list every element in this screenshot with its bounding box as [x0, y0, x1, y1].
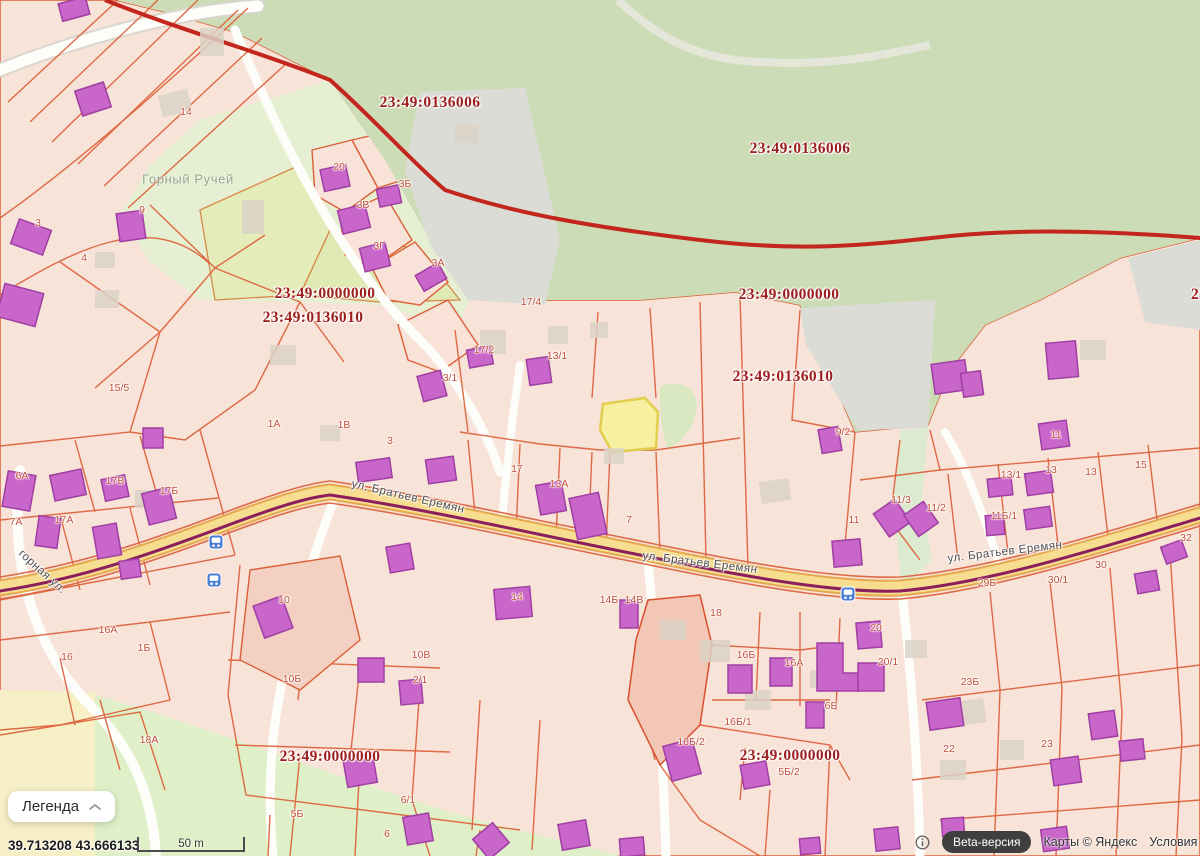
map-copyright[interactable]: Карты © Яндекс — [1043, 835, 1137, 849]
parcel-number-label: 16 — [61, 651, 73, 663]
parcel-number-label: 23Б — [961, 676, 980, 688]
parcel-number-label: 14 — [180, 106, 192, 118]
cadastral-quarter-label: 23:49:0136006 — [380, 94, 481, 112]
parcel-number-label: 6 — [384, 828, 390, 840]
parcel-number-label: 3/1 — [443, 372, 458, 384]
parcel-number-label: 17/4 — [521, 296, 541, 308]
parcel-number-label: 13/1 — [1001, 469, 1021, 481]
parcel-number-label: 11/2 — [926, 502, 946, 514]
parcel-number-label: 3Б — [399, 178, 412, 190]
parcel-number-label: 17А — [55, 514, 74, 526]
beta-version-badge[interactable]: Beta-версия — [942, 831, 1031, 853]
scale-bar-label: 50 m — [178, 839, 204, 850]
parcel-number-label: 1А — [268, 418, 281, 430]
parcel-number-label: 7 — [626, 514, 632, 526]
bus-stop-icon[interactable] — [841, 587, 856, 602]
parcel-number-label: 22 — [943, 743, 955, 755]
parcel-number-label: 20 — [870, 622, 882, 634]
parcel-number-label: 3А — [432, 257, 445, 269]
bus-stop-icon[interactable] — [209, 535, 224, 550]
parcel-number-label: 13 — [1085, 466, 1097, 478]
parcel-number-label: 13 — [1045, 464, 1057, 476]
cadastral-quarter-label: 23:49:0136010 — [263, 309, 364, 327]
parcel-number-label: 14 — [511, 591, 523, 603]
map-viewport[interactable]: 23:49:013600623:49:013600623:49:00000002… — [0, 0, 1200, 856]
parcel-number-label: 9 — [139, 204, 145, 216]
cadastral-quarter-label: 23:49:0000000 — [739, 286, 840, 304]
cadastral-quarter-label: 23:49:0136006 — [750, 140, 851, 158]
parcel-number-label: 14В — [625, 594, 644, 606]
cadastral-quarter-label: 23:49:0136010 — [733, 368, 834, 386]
parcel-number-label: 14Б — [600, 594, 619, 606]
parcel-number-label: 10Б — [283, 673, 302, 685]
parcel-number-label: 10 — [278, 594, 290, 606]
selected-parcel[interactable] — [600, 398, 658, 452]
parcel-number-label: 1Б — [138, 642, 151, 654]
cadastral-quarter-label: 23:49:0000000 — [275, 285, 376, 303]
parcel-number-label: 30/1 — [1048, 574, 1068, 586]
place-name-label: Горный Ручей — [142, 172, 234, 187]
parcel-number-label: 16А — [99, 624, 118, 636]
parcel-number-label: 23 — [1041, 738, 1053, 750]
parcel-number-label: 9/2 — [836, 426, 851, 438]
parcel-number-label: 3В — [357, 199, 370, 211]
cursor-coordinates: 39.713208 43.666133 — [8, 838, 139, 853]
parcel-number-label: 6/1 — [401, 794, 416, 806]
parcel-number-label: 20/1 — [878, 656, 898, 668]
parcel-number-label: 13/1 — [547, 350, 567, 362]
parcel-number-label: 17Б — [160, 485, 179, 497]
parcel-number-label: 16Б — [737, 649, 756, 661]
parcel-number-label: 5Б/2 — [778, 766, 800, 778]
parcel-number-label: 18А — [140, 734, 159, 746]
parcel-number-label: 17В — [106, 475, 125, 487]
parcel-number-label: 6Б — [825, 700, 838, 712]
cadastral-quarter-label: 23:49:0000000 — [740, 747, 841, 765]
parcel-number-label: 1В — [338, 419, 351, 431]
parcel-number-label: 32 — [1180, 532, 1192, 544]
parcel-number-label: 20 — [333, 161, 345, 173]
legend-button[interactable]: Легенда — [8, 791, 115, 822]
parcel-number-label: 16Б/2 — [677, 736, 704, 748]
parcel-number-label: 18 — [710, 607, 722, 619]
cadastral-quarter-label: 23:4 — [1191, 286, 1200, 304]
parcel-number-label: 17 — [511, 463, 523, 475]
parcel-number-label: 17/2 — [474, 344, 494, 356]
parcel-number-label: 4 — [81, 252, 87, 264]
parcel-number-label: 6А — [16, 470, 29, 482]
parcel-number-label: 11 — [1051, 429, 1062, 441]
parcel-number-label: 10В — [412, 649, 431, 661]
map-canvas[interactable] — [0, 0, 1200, 856]
parcel-number-label: 7А — [10, 516, 23, 528]
bus-stop-icon[interactable] — [207, 573, 222, 588]
legend-button-label: Легенда — [22, 798, 79, 815]
parcel-number-label: 2/1 — [413, 674, 428, 686]
parcel-number-label: 15 — [1135, 459, 1147, 471]
parcel-number-label: 11/3 — [891, 494, 911, 506]
parcel-number-label: 15/5 — [109, 382, 129, 394]
parcel-number-label: 3Г — [373, 240, 385, 252]
parcel-number-label: 11Б/1 — [991, 510, 1018, 522]
parcel-number-label: 13А — [550, 478, 569, 490]
parcel-number-label: 29Б — [978, 577, 997, 589]
scale-bar: 50 m — [137, 837, 245, 852]
chevron-up-icon — [89, 803, 101, 811]
info-icon[interactable] — [915, 835, 930, 850]
parcel-number-label: 3 — [387, 435, 393, 447]
parcel-number-label: 11 — [849, 514, 860, 526]
parcel-number-label: 5Б — [291, 808, 304, 820]
attribution-bar: Beta-версия Карты © Яндекс Условия испол… — [915, 831, 1200, 853]
parcel-number-label: 30 — [1095, 559, 1107, 571]
cadastral-quarter-label: 23:49:0000000 — [280, 748, 381, 766]
parcel-number-label: 16А — [785, 657, 804, 669]
terms-link[interactable]: Условия использ — [1149, 835, 1200, 849]
parcel-number-label: 16Б/1 — [724, 716, 751, 728]
parcel-number-label: 3 — [35, 217, 41, 229]
